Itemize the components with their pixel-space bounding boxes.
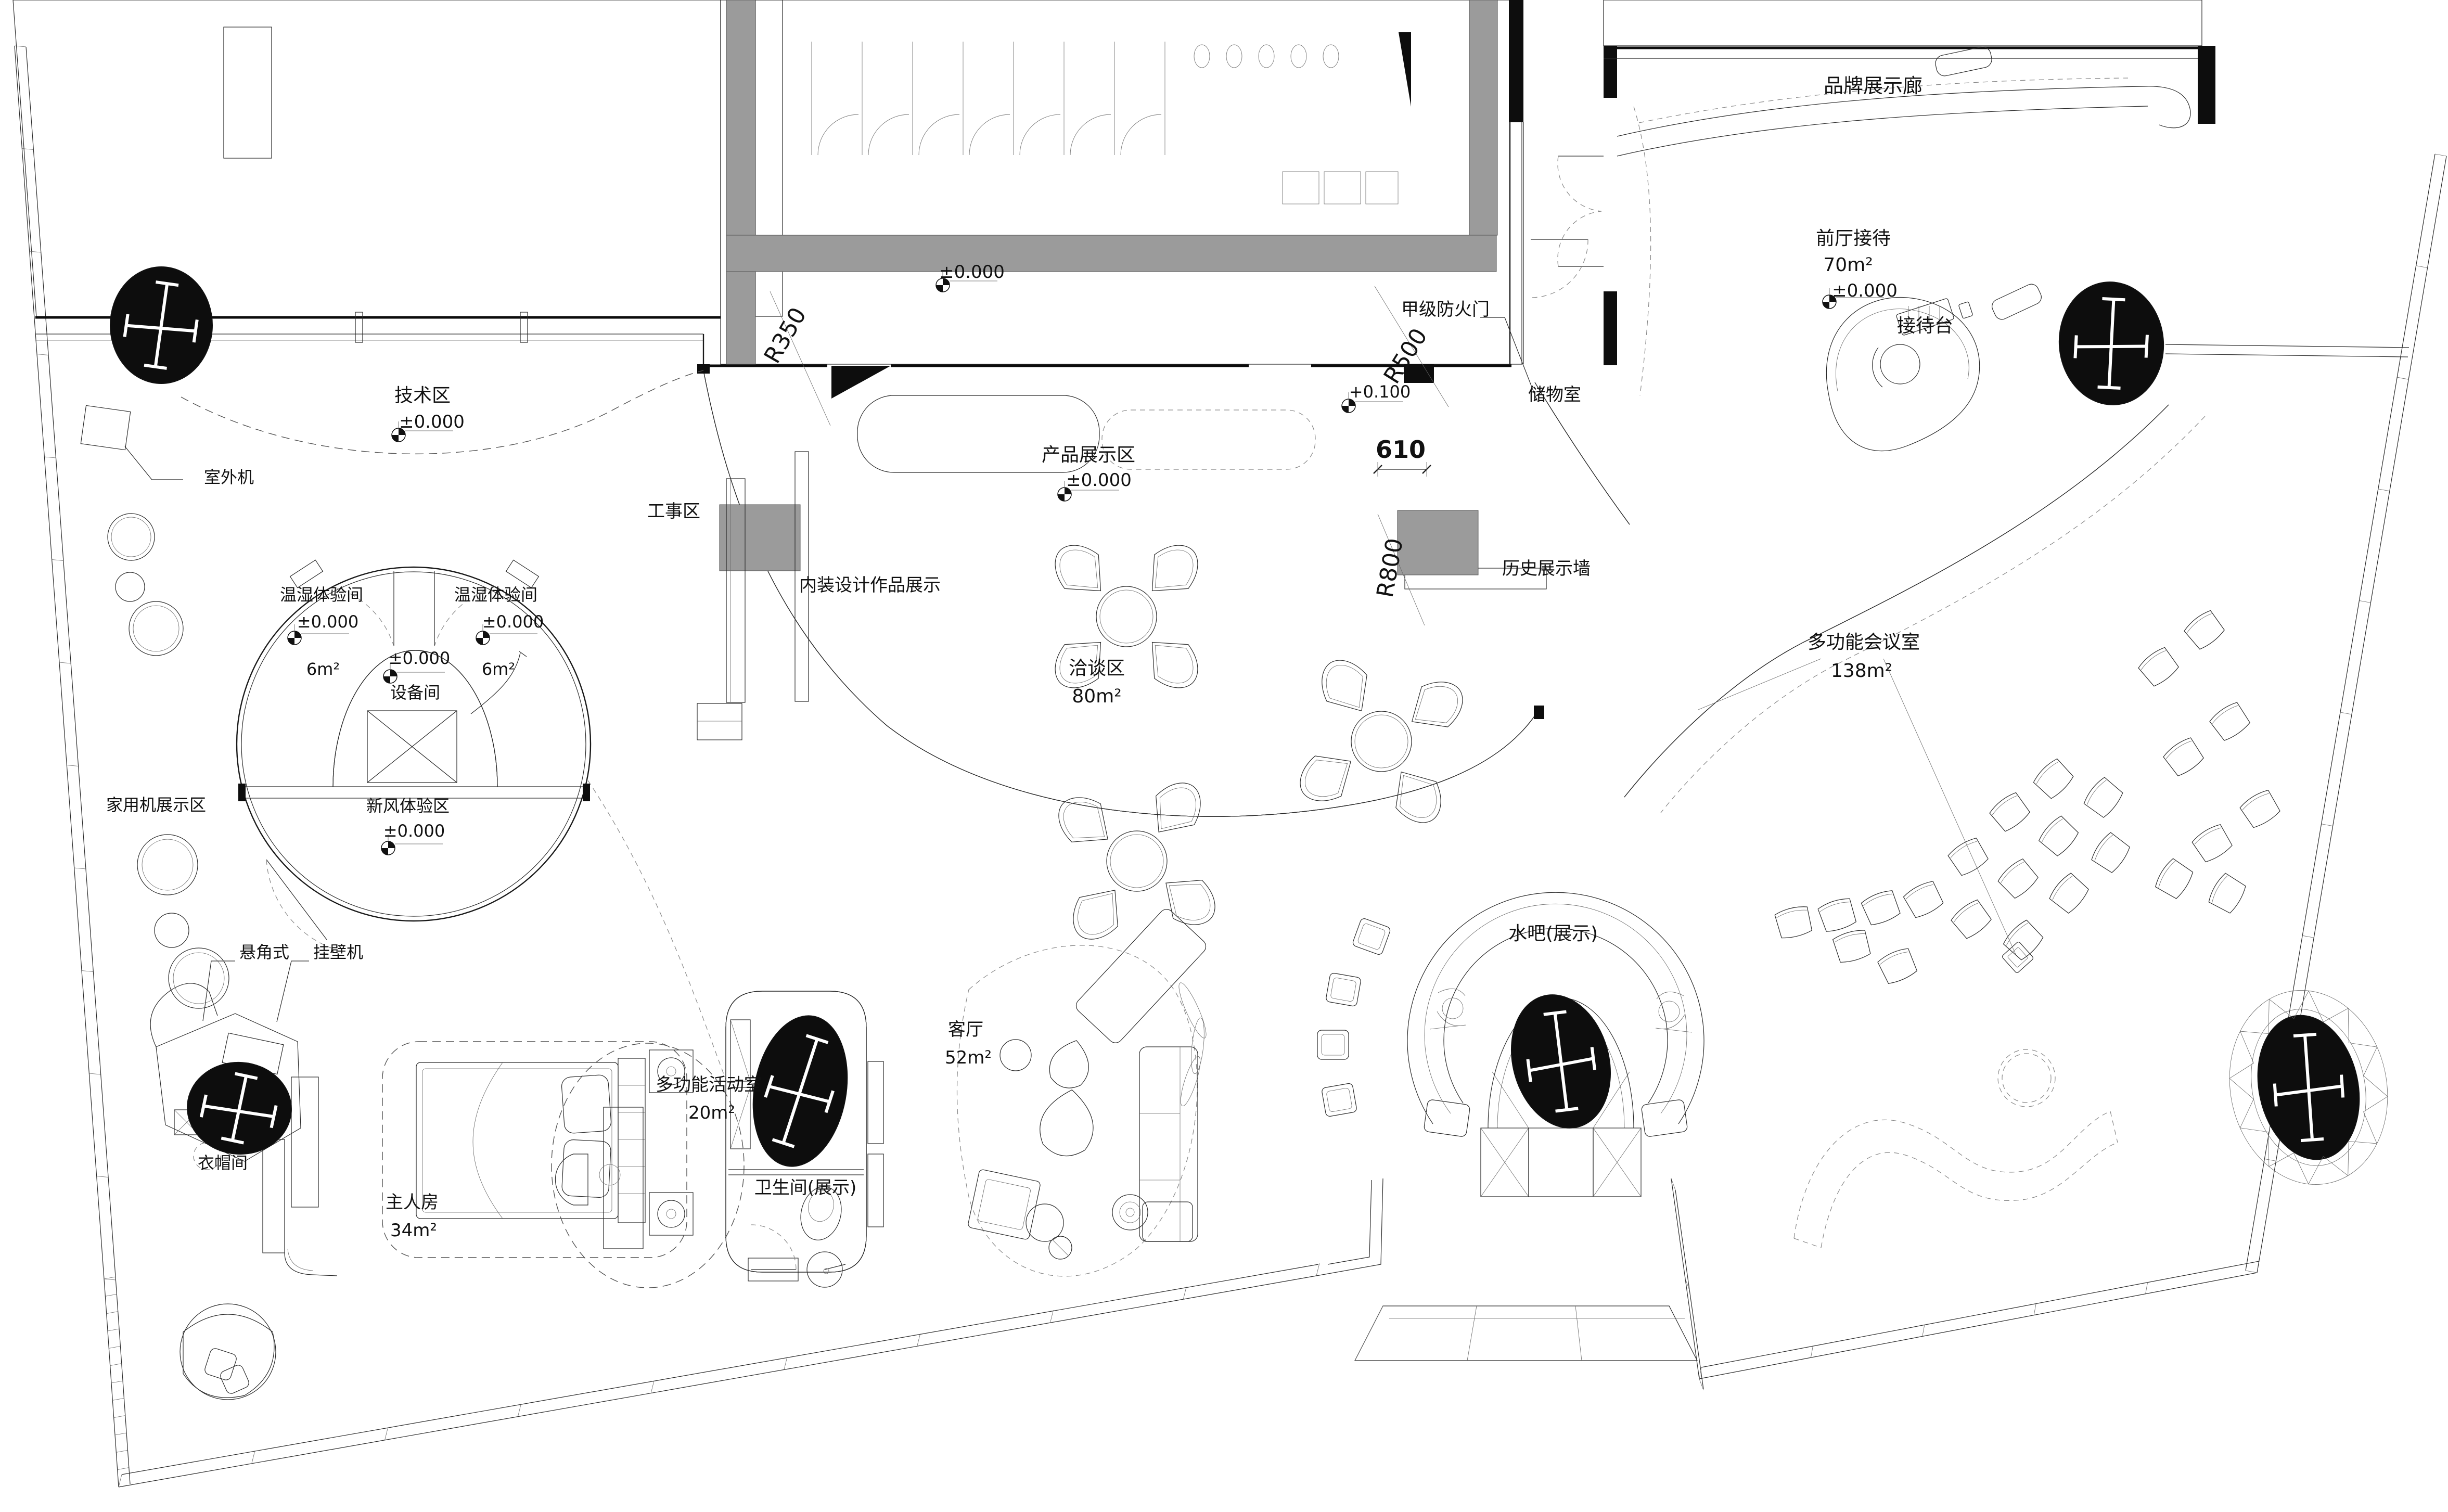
label-equip-level: ±0.000 (389, 648, 450, 668)
label-r350: R350 (759, 303, 812, 368)
label-freshair-zone: 新风体验区 (366, 796, 450, 816)
label-r800: R800 (1372, 536, 1408, 600)
meeting-chair (2153, 857, 2195, 900)
tech-zone (81, 405, 229, 1008)
label-th-room-r: 温湿体验间 (454, 585, 537, 605)
label-talk-area: 80m² (1072, 686, 1121, 707)
meeting-chair (2082, 776, 2125, 819)
meeting-chair (1860, 888, 1902, 927)
meeting-chair (1877, 946, 1919, 985)
label-product-zone: 产品展示区 (1042, 444, 1135, 466)
seat-cluster (1290, 650, 1473, 833)
meeting-chair (2032, 757, 2075, 801)
label-th-room-r-area: 6m² (482, 659, 515, 679)
meeting-chair (1988, 790, 2032, 834)
meeting-chair (1774, 904, 1813, 940)
toilet-core (726, 0, 1497, 364)
label-master-area: 34m² (390, 1220, 437, 1241)
label-talk-zone: 洽谈区 (1069, 658, 1125, 679)
label-work-zone: 工事区 (647, 501, 700, 522)
column-marker (1497, 984, 1624, 1139)
label-master-room: 主人房 (386, 1192, 439, 1213)
meeting-chair (1902, 879, 1945, 920)
label-tech-zone: 技术区 (394, 385, 451, 406)
label-dim-610: 610 (1376, 435, 1426, 464)
label-fire-door: 甲级防火门 (1401, 299, 1490, 320)
label-p100-level: +0.100 (1349, 382, 1411, 402)
label-outdoor-unit: 室外机 (204, 467, 254, 487)
label-bathroom-display: 卫生间(展示) (754, 1177, 857, 1198)
label-living-room: 客厅 (948, 1019, 983, 1040)
label-th-room-l: 温湿体验间 (280, 585, 363, 605)
label-home-unit-zone: 家用机展示区 (106, 795, 206, 815)
meeting-chair (2090, 831, 2132, 875)
label-interior-display: 内装设计作品展示 (799, 575, 941, 596)
meeting-chair (1832, 928, 1872, 965)
label-th-room-r-level: ±0.000 (482, 612, 544, 632)
curved-display-walls (1535, 382, 2205, 813)
column-marker (184, 1059, 294, 1158)
meeting-chair (2137, 645, 2181, 688)
label-meeting-room: 多功能会议室 (1808, 632, 1920, 653)
column-marker (110, 267, 212, 383)
storage-room (720, 239, 1588, 589)
column-marker (2245, 1006, 2372, 1169)
label-corner-type: 悬角式 (239, 942, 289, 962)
label-history-wall: 历史展示墙 (1502, 558, 1591, 579)
seat-cluster (1048, 772, 1226, 951)
column-marker (2054, 278, 2169, 409)
meeting-chair (2047, 872, 2091, 915)
label-reception-desk: 接待台 (1897, 315, 1953, 337)
label-th-room-l-area: 6m² (306, 659, 340, 679)
meeting-chair (1950, 898, 1993, 941)
living-room (957, 906, 1211, 1276)
talk-zone-seats (1043, 533, 1473, 950)
curved-partition (181, 364, 1544, 1081)
work-zone-walls (697, 452, 809, 740)
meeting-chair (1946, 836, 1990, 878)
label-lobby-area: 70m² (1823, 254, 1873, 276)
label-cloakroom: 衣帽间 (198, 1153, 248, 1173)
label-brand-gallery: 品牌展示廊 (1824, 74, 1922, 97)
meeting-chair (2037, 814, 2081, 858)
label-storage: 储物室 (1528, 385, 1581, 405)
meeting-chair (2183, 608, 2226, 651)
meeting-chair (2208, 700, 2252, 743)
label-meeting-area: 138m² (1831, 660, 1892, 682)
meeting-chair (1817, 896, 1858, 934)
label-entry-level: ±0.000 (939, 262, 1005, 283)
label-multi-activity: 多功能活动室 (656, 1074, 762, 1095)
label-tech-level: ±0.000 (399, 412, 465, 432)
lounge-bench (1794, 1049, 2118, 1248)
meeting-chair (2190, 822, 2234, 864)
label-multi-activity-area: 20m² (688, 1103, 735, 1123)
water-bar (1317, 892, 1704, 1361)
meeting-chair (2162, 736, 2206, 778)
floor-plan-canvas: 品牌展示廊前厅接待70m²±0.000接待台甲级防火门R500+0.100610… (0, 0, 2448, 1512)
label-freshair-level: ±0.000 (383, 821, 445, 841)
label-th-room-l-level: ±0.000 (297, 612, 358, 632)
meeting-chair (2002, 918, 2045, 962)
label-lobby-reception: 前厅接待 (1816, 228, 1891, 249)
label-equip-room: 设备间 (390, 683, 440, 702)
label-living-area: 52m² (945, 1047, 992, 1068)
existing-building-hatch (13, 0, 2202, 364)
columns (110, 267, 2405, 1199)
label-lobby-level: ±0.000 (1832, 280, 1898, 301)
label-wall-unit: 挂壁机 (313, 942, 363, 962)
label-water-bar: 水吧(展示) (1508, 923, 1598, 944)
meeting-chair (2207, 872, 2248, 915)
meeting-chair (2238, 788, 2282, 830)
meeting-chair (1996, 857, 2040, 901)
label-product-level: ±0.000 (1066, 470, 1132, 491)
level-markers (288, 272, 1884, 855)
corner-display (150, 983, 337, 1400)
